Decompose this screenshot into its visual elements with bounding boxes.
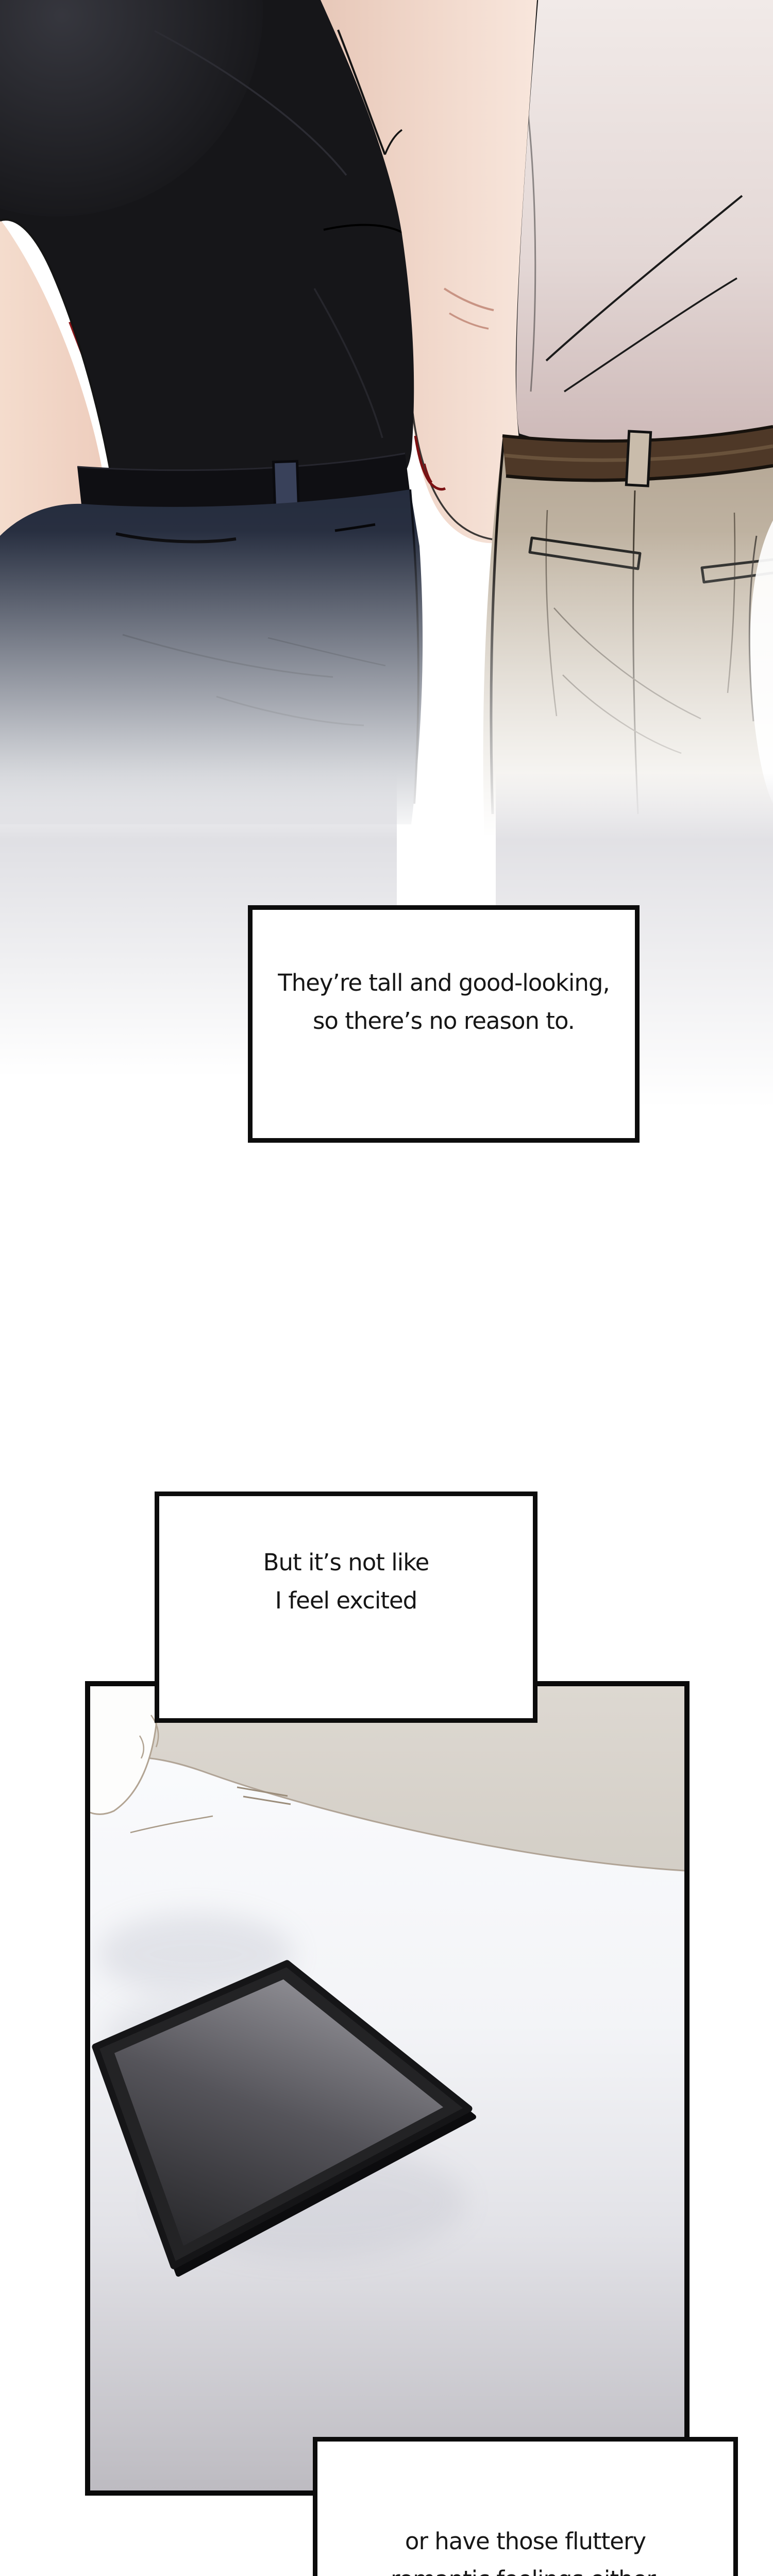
belt-loop-khaki <box>626 431 650 486</box>
belt-loop-navy <box>273 461 298 510</box>
narration-line: I feel excited <box>275 1582 417 1620</box>
figure-right-shirt <box>512 0 773 452</box>
narration-box-1: They’re tall and good-looking, so there’… <box>248 905 640 1143</box>
narration-box-2: But it’s not like I feel excited <box>155 1492 537 1723</box>
narration-box-3: or have those fluttery romantic feelings… <box>313 2437 738 2576</box>
narration-line: romantic feelings either. <box>391 2561 660 2576</box>
narration-line: so there’s no reason to. <box>313 1002 575 1040</box>
comic-panel-bedroom <box>85 1681 690 2496</box>
panel-artwork <box>90 1686 684 2490</box>
narration-line: or have those fluttery <box>405 2522 646 2561</box>
webtoon-page: They’re tall and good-looking, so there’… <box>0 0 773 2576</box>
narration-line: But it’s not like <box>263 1544 429 1582</box>
narration-line: They’re tall and good-looking, <box>278 964 610 1002</box>
